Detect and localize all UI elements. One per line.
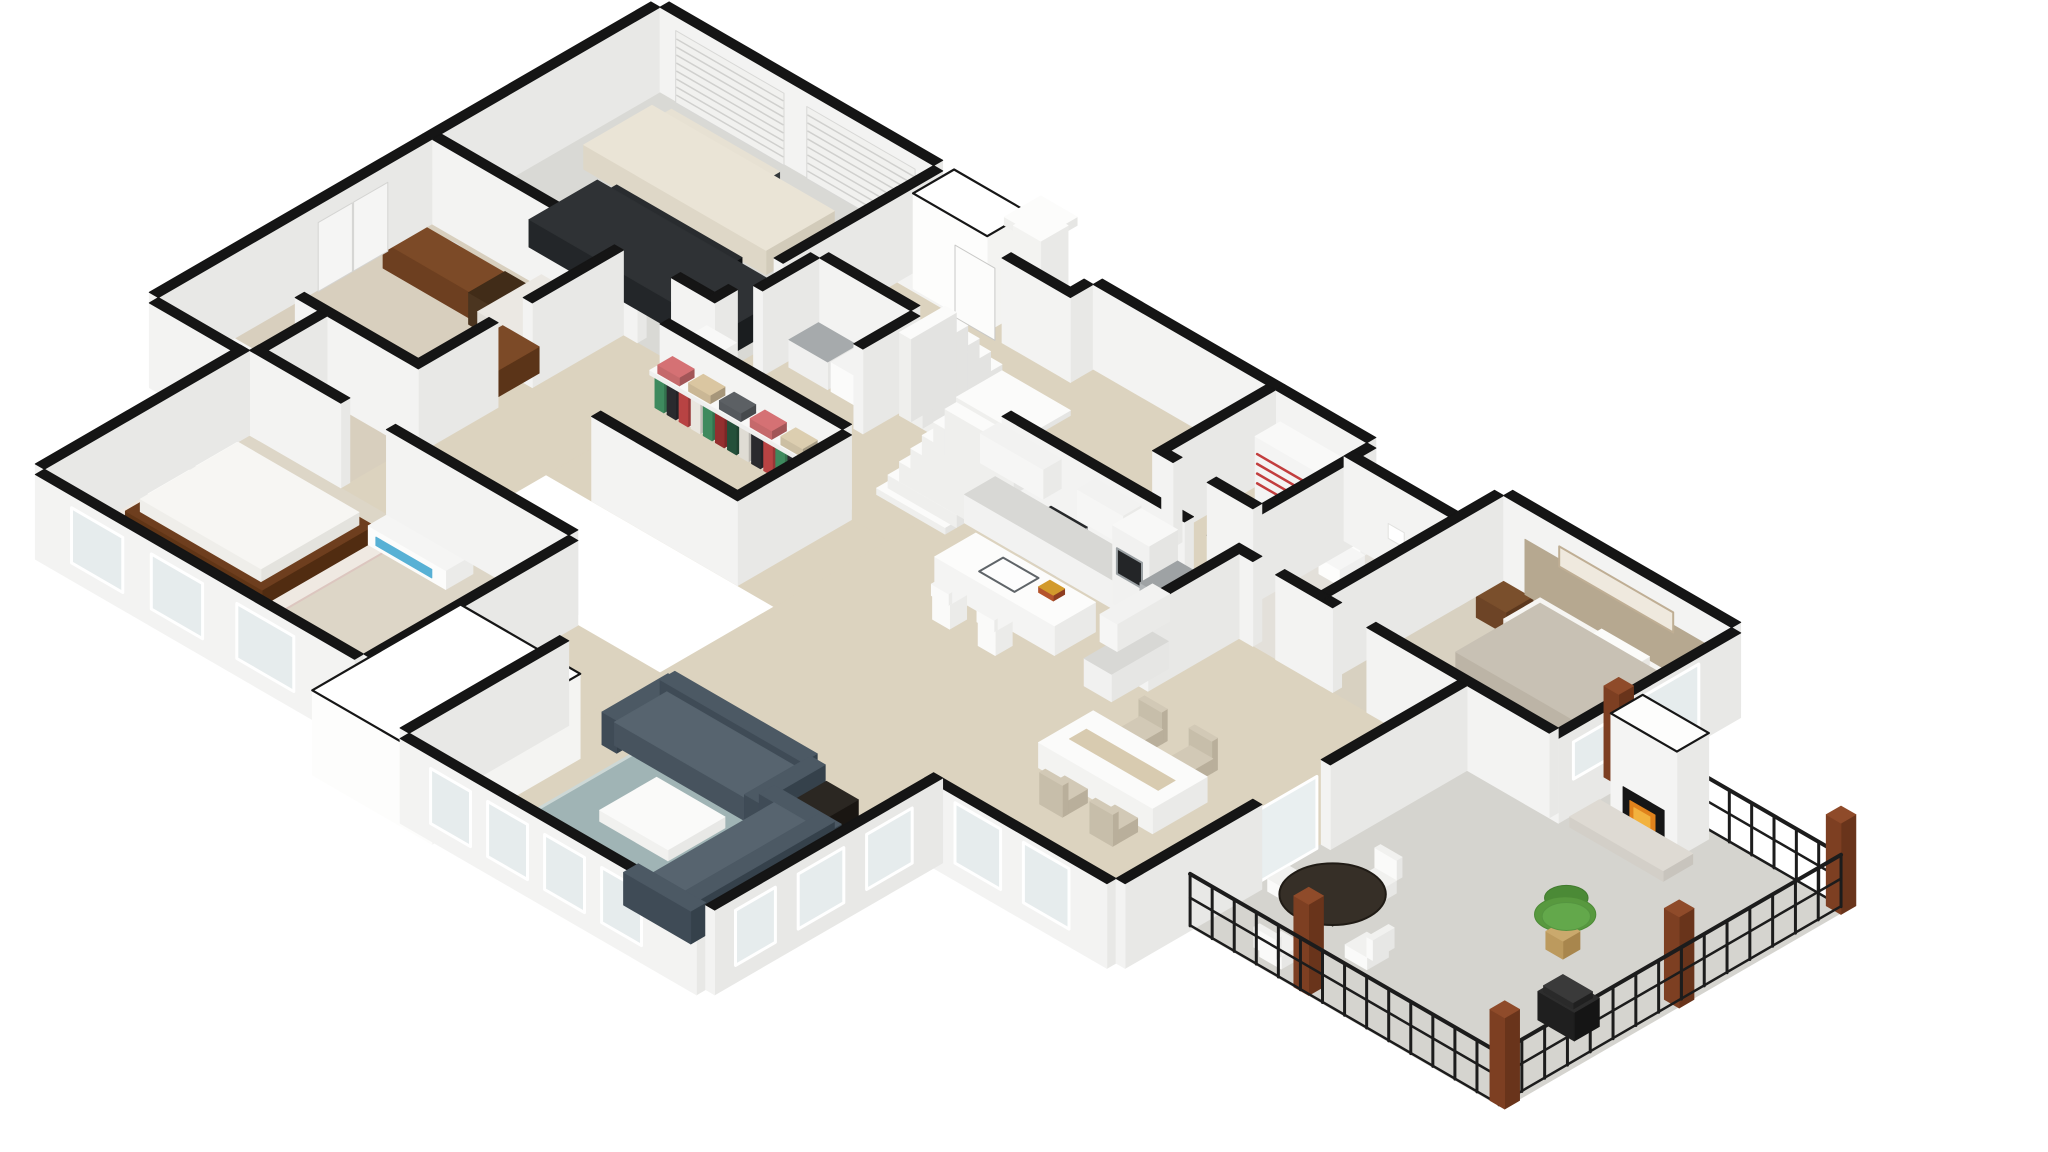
plant-foliage-3 xyxy=(1542,902,1590,930)
rust-post-4 xyxy=(1490,1001,1520,1109)
bedroom2-south-wall-a xyxy=(1321,596,1342,693)
floor-plan-canvas xyxy=(0,0,2048,1152)
floorplan-viewport xyxy=(0,0,2048,1152)
stairs-west-stub xyxy=(1061,279,1093,382)
